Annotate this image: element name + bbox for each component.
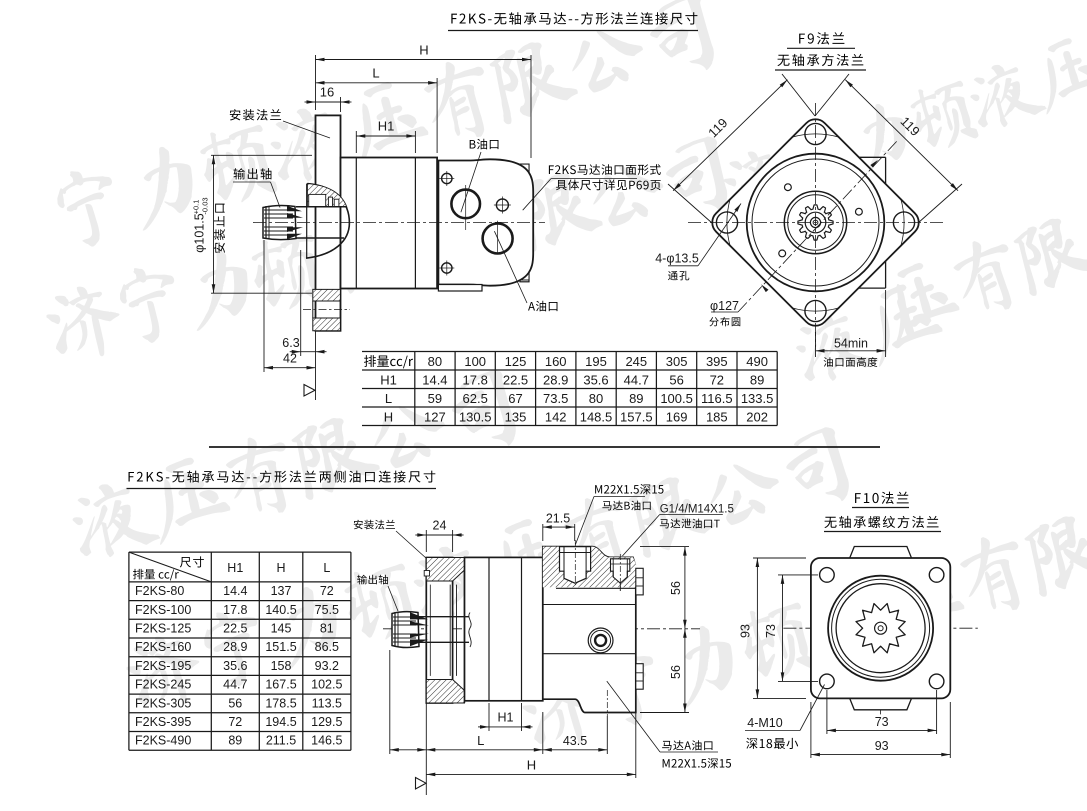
svg-text:89: 89 (228, 734, 242, 748)
svg-text:35.6: 35.6 (583, 373, 608, 388)
svg-text:F2KS-160: F2KS-160 (135, 640, 191, 654)
svg-text:72: 72 (320, 584, 334, 598)
svg-text:125: 125 (505, 354, 527, 369)
svg-text:14.4: 14.4 (223, 584, 247, 598)
svg-text:93.2: 93.2 (315, 659, 339, 673)
svg-text:89: 89 (750, 373, 764, 388)
svg-text:72: 72 (228, 715, 242, 729)
svg-text:H1: H1 (380, 373, 397, 388)
svg-text:H: H (527, 758, 536, 773)
svg-text:100: 100 (464, 354, 486, 369)
svg-text:21.5: 21.5 (546, 512, 570, 526)
svg-text:305: 305 (666, 354, 688, 369)
svg-text:160: 160 (545, 354, 567, 369)
svg-text:43.5: 43.5 (563, 734, 587, 748)
svg-text:42: 42 (283, 352, 297, 366)
svg-text:395: 395 (706, 354, 728, 369)
svg-text:56: 56 (669, 665, 683, 679)
svg-text:245: 245 (625, 354, 647, 369)
svg-text:H1: H1 (227, 561, 243, 575)
svg-text:F2KS-305: F2KS-305 (135, 696, 191, 710)
svg-text:44.7: 44.7 (624, 373, 649, 388)
svg-text:202: 202 (746, 410, 768, 425)
svg-text:81: 81 (320, 622, 334, 636)
svg-text:169: 169 (666, 410, 688, 425)
svg-text:89: 89 (629, 391, 643, 406)
svg-text:28.9: 28.9 (223, 640, 247, 654)
svg-text:24: 24 (433, 519, 447, 533)
svg-text:167.5: 167.5 (265, 678, 296, 692)
svg-text:102.5: 102.5 (311, 678, 342, 692)
svg-text:F2KS-125: F2KS-125 (135, 622, 191, 636)
svg-text:80: 80 (589, 391, 603, 406)
svg-text:142: 142 (545, 410, 567, 425)
svg-text:22.5: 22.5 (503, 373, 528, 388)
svg-text:145: 145 (271, 622, 292, 636)
svg-text:80: 80 (428, 354, 442, 369)
svg-text:6.3: 6.3 (282, 336, 299, 350)
svg-text:211.5: 211.5 (266, 734, 296, 748)
svg-text:17.8: 17.8 (223, 603, 247, 617)
svg-text:75.5: 75.5 (315, 603, 339, 617)
svg-text:4-M10: 4-M10 (747, 716, 782, 730)
svg-text:129.5: 129.5 (311, 715, 342, 729)
svg-text:100.5: 100.5 (660, 391, 693, 406)
svg-text:59: 59 (428, 391, 442, 406)
svg-text:F2KS-195: F2KS-195 (135, 659, 191, 673)
svg-text:F2KS-80: F2KS-80 (135, 584, 184, 598)
svg-text:62.5: 62.5 (463, 391, 488, 406)
svg-text:56: 56 (669, 581, 683, 595)
svg-text:-0.03: -0.03 (201, 197, 210, 214)
svg-text:44.7: 44.7 (223, 678, 247, 692)
svg-text:H: H (419, 43, 428, 58)
svg-text:72: 72 (710, 373, 724, 388)
svg-text:127: 127 (424, 410, 446, 425)
svg-text:137: 137 (271, 584, 292, 598)
svg-text:14.4: 14.4 (422, 373, 447, 388)
svg-text:130.5: 130.5 (459, 410, 492, 425)
svg-text:185: 185 (706, 410, 728, 425)
svg-text:140.5: 140.5 (265, 603, 296, 617)
svg-text:54min: 54min (834, 337, 868, 351)
svg-text:4-φ13.5: 4-φ13.5 (655, 252, 699, 266)
svg-text:L: L (385, 391, 392, 406)
svg-text:28.9: 28.9 (543, 373, 568, 388)
svg-text:L: L (477, 733, 484, 748)
svg-text:116.5: 116.5 (701, 391, 733, 406)
svg-text:22.5: 22.5 (223, 622, 247, 636)
svg-text:157.5: 157.5 (620, 410, 653, 425)
svg-text:F2KS-490: F2KS-490 (135, 734, 191, 748)
svg-text:35.6: 35.6 (223, 659, 247, 673)
svg-text:L: L (372, 66, 379, 81)
svg-text:151.5: 151.5 (265, 640, 296, 654)
svg-text:490: 490 (746, 354, 768, 369)
svg-text:G1/4/M14X1.5: G1/4/M14X1.5 (660, 504, 734, 516)
svg-text:133.5: 133.5 (741, 391, 774, 406)
svg-text:16: 16 (320, 85, 334, 100)
svg-text:73.5: 73.5 (543, 391, 568, 406)
svg-text:135: 135 (505, 410, 527, 425)
svg-text:H: H (276, 561, 285, 575)
svg-text:F2KS-245: F2KS-245 (135, 678, 191, 692)
svg-text:φ127: φ127 (710, 299, 739, 313)
svg-text:195: 195 (585, 354, 607, 369)
svg-text:93: 93 (739, 624, 753, 638)
svg-text:F2KS-100: F2KS-100 (135, 603, 191, 617)
svg-text:178.5: 178.5 (265, 696, 296, 710)
svg-text:73: 73 (764, 624, 778, 638)
svg-text:148.5: 148.5 (580, 410, 613, 425)
svg-text:158: 158 (271, 659, 292, 673)
svg-text:56: 56 (228, 696, 242, 710)
svg-text:H1: H1 (378, 119, 395, 134)
svg-text:56: 56 (669, 373, 683, 388)
svg-text:67: 67 (508, 391, 522, 406)
svg-text:H: H (384, 410, 393, 425)
svg-text:73: 73 (875, 715, 889, 729)
svg-text:F2KS-395: F2KS-395 (135, 715, 191, 729)
svg-text:146.5: 146.5 (311, 734, 342, 748)
svg-text:194.5: 194.5 (265, 715, 296, 729)
svg-text:86.5: 86.5 (315, 640, 339, 654)
svg-text:L: L (323, 561, 330, 575)
svg-text:113.5: 113.5 (312, 696, 342, 710)
svg-text:17.8: 17.8 (463, 373, 488, 388)
svg-text:H1: H1 (498, 711, 514, 725)
svg-text:93: 93 (875, 739, 889, 753)
svg-text:+0.1: +0.1 (192, 200, 201, 215)
svg-text:φ101.5: φ101.5 (193, 213, 207, 252)
